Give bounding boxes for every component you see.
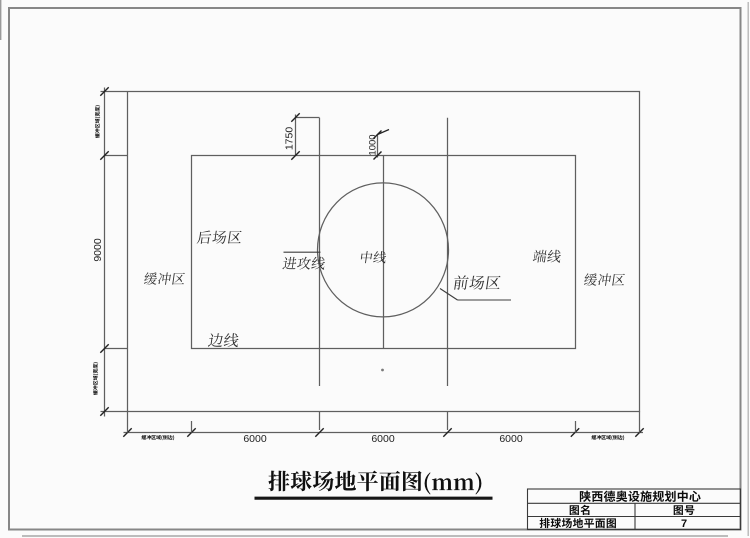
svg-text:1000: 1000 xyxy=(368,134,379,155)
svg-text:6000: 6000 xyxy=(371,433,395,445)
svg-text:7: 7 xyxy=(681,518,687,530)
svg-text:1750: 1750 xyxy=(284,127,296,151)
svg-text:6000: 6000 xyxy=(499,433,523,445)
svg-text:9000: 9000 xyxy=(92,238,104,262)
svg-text:6000: 6000 xyxy=(243,433,267,445)
